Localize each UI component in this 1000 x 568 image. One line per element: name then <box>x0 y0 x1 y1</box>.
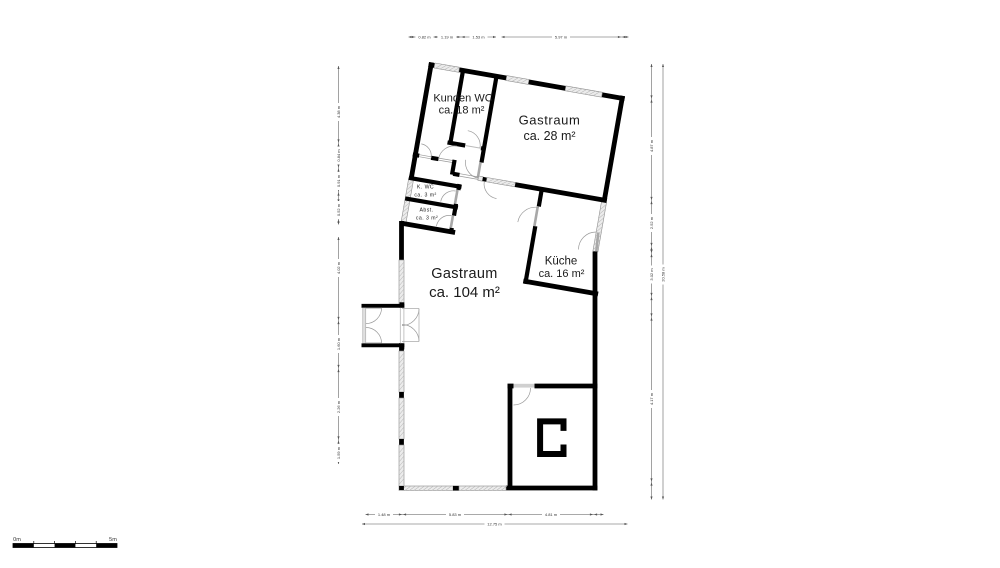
svg-text:4.87 m: 4.87 m <box>649 139 654 152</box>
svg-text:4.81 m: 4.81 m <box>545 512 558 517</box>
svg-text:20.58 m: 20.58 m <box>661 267 666 282</box>
svg-text:2.26 m: 2.26 m <box>336 400 341 413</box>
svg-text:1.48 m: 1.48 m <box>378 512 391 517</box>
svg-text:0.84 m: 0.84 m <box>336 149 341 162</box>
svg-text:Gastraum: Gastraum <box>519 113 581 128</box>
svg-text:1.60 m: 1.60 m <box>336 337 341 350</box>
svg-text:2.52 m: 2.52 m <box>649 216 654 229</box>
svg-text:12.75 m: 12.75 m <box>487 522 502 527</box>
svg-text:4.38 m: 4.38 m <box>336 105 341 118</box>
svg-text:Kunden WC: Kunden WC <box>433 93 492 105</box>
svg-text:Abst.: Abst. <box>419 208 433 214</box>
svg-text:5m: 5m <box>109 537 117 543</box>
svg-text:4.02 m: 4.02 m <box>336 261 341 274</box>
svg-text:ca. 104 m²: ca. 104 m² <box>429 284 500 301</box>
svg-text:ca. 18 m²: ca. 18 m² <box>439 105 485 117</box>
svg-text:3.02 m: 3.02 m <box>649 268 654 281</box>
svg-text:0.82 m: 0.82 m <box>418 35 431 40</box>
svg-text:ca. 3 m²: ca. 3 m² <box>414 193 436 199</box>
svg-text:ca. 16 m²: ca. 16 m² <box>539 268 585 280</box>
svg-text:K. WC: K. WC <box>417 185 434 191</box>
svg-text:0.52 m: 0.52 m <box>336 203 341 216</box>
svg-text:1.19 m: 1.19 m <box>441 35 454 40</box>
svg-text:0m: 0m <box>13 537 21 543</box>
svg-text:5.97 m: 5.97 m <box>555 35 568 40</box>
svg-text:0.91 m: 0.91 m <box>336 174 341 187</box>
svg-text:Küche: Küche <box>545 256 578 268</box>
svg-text:1.59 m: 1.59 m <box>336 446 341 459</box>
svg-text:5.83 m: 5.83 m <box>449 512 462 517</box>
svg-text:ca. 28 m²: ca. 28 m² <box>523 129 575 143</box>
svg-text:Gastraum: Gastraum <box>431 266 497 282</box>
svg-text:1.53 m: 1.53 m <box>472 35 485 40</box>
svg-text:ca. 3 m²: ca. 3 m² <box>416 216 438 222</box>
svg-text:4.17 m: 4.17 m <box>649 392 654 405</box>
